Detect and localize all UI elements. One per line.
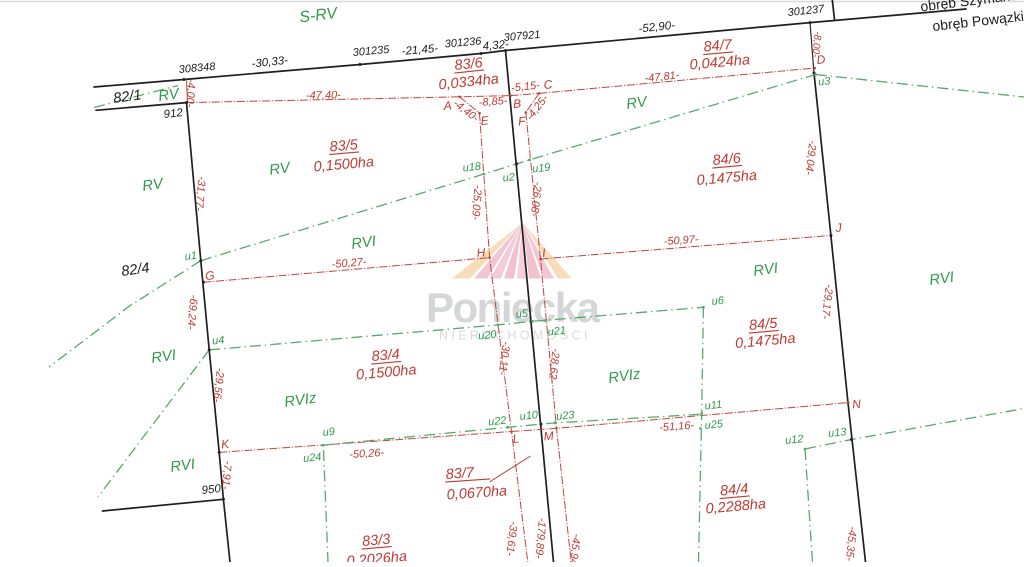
svg-text:u10: u10 [519,409,539,423]
svg-text:912: 912 [163,107,184,121]
svg-text:-5,15-: -5,15- [511,80,541,95]
svg-text:NIERUCHOMOŚCI: NIERUCHOMOŚCI [439,328,591,343]
svg-text:u12: u12 [785,433,805,447]
svg-text:u4: u4 [212,334,225,347]
svg-text:u6: u6 [711,295,725,308]
svg-text:u18: u18 [462,161,482,175]
svg-text:-31,77-: -31,77- [192,176,207,212]
svg-text:RV: RV [157,85,182,105]
svg-text:-45,94-: -45,94- [566,533,582,562]
svg-text:G: G [205,268,216,283]
svg-text:-8,85-: -8,85- [478,95,508,109]
svg-text:-47,81-: -47,81- [644,69,680,85]
svg-text:N: N [852,397,862,412]
svg-text:-29,56-: -29,56- [210,367,226,403]
svg-text:C: C [543,77,553,92]
svg-text:301235: 301235 [352,44,390,59]
svg-text:0,1475ha: 0,1475ha [734,331,796,352]
svg-text:-4,00-: -4,00- [183,78,197,108]
svg-text:RV: RV [268,159,293,179]
svg-text:RVIz: RVIz [283,390,318,411]
svg-text:u25: u25 [704,418,724,432]
svg-text:L: L [512,431,520,446]
svg-text:-52,90-: -52,90- [638,20,676,36]
svg-text:RVI: RVI [752,260,779,280]
svg-text:u9: u9 [322,426,335,439]
svg-text:0,0334ha: 0,0334ha [438,71,500,93]
svg-text:-51,16-: -51,16- [659,420,695,434]
svg-text:E: E [480,113,490,128]
svg-text:0,0424ha: 0,0424ha [689,52,751,73]
svg-text:u2: u2 [502,171,515,184]
svg-text:u19: u19 [532,162,552,176]
svg-text:-29,17-: -29,17- [819,284,835,320]
svg-text:-39,61-: -39,61- [503,521,519,557]
svg-text:0,2288ha: 0,2288ha [705,496,767,517]
svg-text:-50,97-: -50,97- [663,234,699,248]
svg-text:-21,45-: -21,45- [401,43,439,58]
svg-text:RV: RV [625,93,650,113]
svg-text:RV: RV [141,175,166,195]
svg-text:u1: u1 [184,250,197,263]
svg-text:0,1500ha: 0,1500ha [313,154,375,175]
svg-text:307921: 307921 [503,29,541,44]
svg-text:Poniecka: Poniecka [426,284,601,331]
svg-text:u5: u5 [515,308,529,321]
svg-text:u13: u13 [828,426,848,440]
svg-text:-28,62-: -28,62- [546,348,562,384]
svg-text:u20: u20 [478,329,498,343]
svg-text:K: K [221,437,231,452]
svg-text:D: D [816,52,826,67]
svg-text:-26,08-: -26,08- [528,181,544,217]
svg-text:-50,26-: -50,26- [349,447,385,461]
svg-text:J: J [834,220,843,235]
svg-text:H: H [476,245,486,260]
svg-text:301237: 301237 [787,3,826,19]
svg-text:u21: u21 [547,325,567,339]
svg-text:B: B [513,96,522,111]
svg-text:u24: u24 [303,451,323,465]
svg-text:RVI: RVI [928,269,955,289]
svg-text:0,0670ha: 0,0670ha [446,483,507,503]
svg-text:-30,11-: -30,11- [496,341,512,377]
svg-text:-29,04-: -29,04- [802,140,818,176]
svg-text:82/4: 82/4 [120,260,150,280]
svg-text:308348: 308348 [178,61,216,76]
svg-text:RVI: RVI [150,347,177,367]
svg-text:RVIz: RVIz [607,366,642,387]
svg-text:0,2026ha: 0,2026ha [346,549,408,562]
svg-text:82/1: 82/1 [112,87,142,107]
svg-text:A: A [442,98,452,113]
svg-text:-25,09-: -25,09- [469,185,483,221]
svg-text:S-RV: S-RV [298,5,339,27]
svg-text:-30,33-: -30,33- [251,55,289,71]
svg-text:-69,24-: -69,24- [184,294,199,330]
svg-text:-47,40-: -47,40- [306,89,341,102]
svg-text:RVI: RVI [350,233,377,253]
svg-text:-45,35-: -45,35- [843,526,859,562]
svg-text:0,1500ha: 0,1500ha [355,362,417,383]
svg-text:M: M [543,429,554,444]
svg-text:u22: u22 [488,415,508,429]
svg-text:950: 950 [201,483,222,497]
svg-text:u3: u3 [818,75,832,88]
svg-text:RVI: RVI [169,456,196,476]
svg-text:u23: u23 [556,409,576,423]
svg-text:0,1475ha: 0,1475ha [696,168,758,189]
svg-text:u11: u11 [704,399,723,413]
svg-text:301236: 301236 [444,35,482,50]
svg-text:-179,89-: -179,89- [532,517,548,559]
svg-text:-4,25-: -4,25- [524,93,551,123]
svg-text:-7,91-: -7,91- [219,460,233,490]
